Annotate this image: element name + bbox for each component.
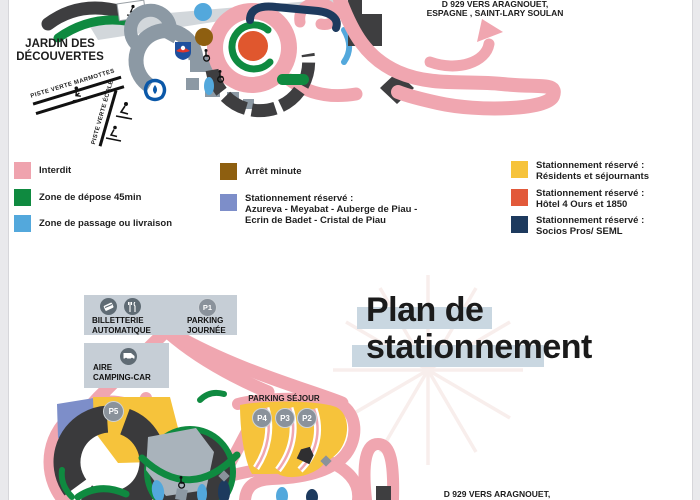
restaurant-icon: [124, 298, 141, 315]
p2-marker: P2: [297, 408, 317, 428]
page-edge-right: [692, 0, 700, 500]
legend-item-hotel: Stationnement réservé : Hôtel 4 Ours et …: [511, 189, 644, 211]
sledder-icon: [113, 100, 135, 122]
legend-swatch: [14, 162, 31, 179]
page-title-line2: stationnement: [366, 330, 592, 364]
legend-swatch: [511, 216, 528, 233]
orange-building: [238, 31, 268, 61]
legend-swatch: [220, 194, 237, 211]
legend-item-azureva: Stationnement réservé : Azureva - Meyaba…: [220, 194, 417, 226]
blue-emblem-icon: [146, 81, 165, 100]
page-title-line1: Plan de: [366, 293, 483, 327]
camping-box: AIRE CAMPING-CAR: [84, 343, 169, 388]
legend-swatch: [14, 215, 31, 232]
road-label-bottom: D 929 VERS ARAGNOUET,: [402, 489, 592, 499]
legend-item-interdit: Interdit: [14, 162, 71, 179]
road-arrow-head: [477, 19, 503, 42]
services-box: P1 BILLETTERIE AUTOMATIQUE PARKING JOURN…: [84, 295, 237, 335]
page-edge-left: [0, 0, 9, 500]
building-block: [376, 486, 391, 500]
ffs-logo-icon: [175, 42, 191, 60]
parking-journee-label: PARKING JOURNÉE: [187, 316, 226, 335]
p5-marker: P5: [103, 401, 124, 422]
road-label-top: D 929 VERS ARAGNOUET, ESPAGNE , SAINT-LA…: [388, 0, 602, 17]
jardin-des-decouvertes-label: JARDIN DES DÉCOUVERTES: [4, 38, 116, 64]
aire-camping-label: AIRE CAMPING-CAR: [93, 363, 151, 382]
p4-marker: P4: [252, 408, 272, 428]
legend-item-residents: Stationnement réservé : Résidents et séj…: [511, 161, 649, 183]
legend-swatch: [220, 163, 237, 180]
legend-swatch: [14, 189, 31, 206]
legend-item-depose: Zone de dépose 45min: [14, 189, 141, 206]
legend-swatch: [511, 189, 528, 206]
sledder-icon: [104, 124, 124, 144]
legend-item-arret-minute: Arrêt minute: [220, 163, 301, 180]
ticket-machine-icon: [100, 298, 117, 315]
legend-item-passage: Zone de passage ou livraison: [14, 215, 172, 232]
p3-marker: P3: [275, 408, 295, 428]
blue-spot: [194, 3, 212, 21]
parking-sejour-label: PARKING SÉJOUR: [238, 394, 330, 403]
legend-item-socios: Stationnement réservé : Socios Pros/ SEM…: [511, 216, 644, 238]
brown-spot: [195, 28, 213, 46]
parking-plan-page: { "top_map": { "jardin": {"line1": "JARD…: [0, 0, 700, 500]
p1-marker: P1: [198, 298, 217, 317]
billetterie-label: BILLETTERIE AUTOMATIQUE: [92, 316, 151, 335]
legend-swatch: [511, 161, 528, 178]
